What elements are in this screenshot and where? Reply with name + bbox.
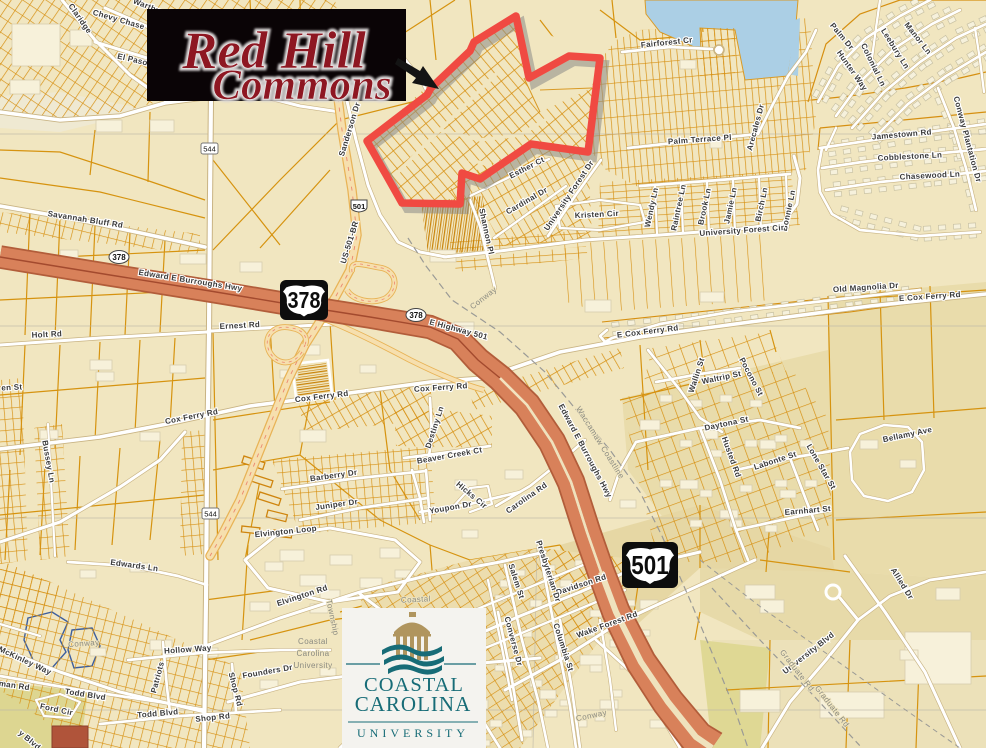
svg-text:en St: en St — [1, 382, 23, 392]
svg-text:University: University — [293, 661, 332, 670]
svg-text:UNIVERSITY: UNIVERSITY — [357, 726, 469, 740]
svg-text:501: 501 — [353, 202, 366, 211]
svg-text:544: 544 — [204, 510, 217, 519]
svg-text:378: 378 — [288, 287, 321, 313]
svg-text:378: 378 — [409, 311, 423, 320]
svg-text:501: 501 — [631, 550, 668, 580]
svg-text:CAROLINA: CAROLINA — [355, 692, 472, 716]
svg-text:Carolina: Carolina — [297, 649, 330, 658]
svg-text:378: 378 — [112, 253, 126, 262]
svg-text:Commons: Commons — [212, 62, 391, 109]
svg-text:Coastal: Coastal — [401, 594, 431, 605]
svg-text:544: 544 — [203, 145, 216, 154]
svg-text:Coastal: Coastal — [298, 637, 328, 646]
svg-text:Holt Rd: Holt Rd — [31, 329, 62, 340]
